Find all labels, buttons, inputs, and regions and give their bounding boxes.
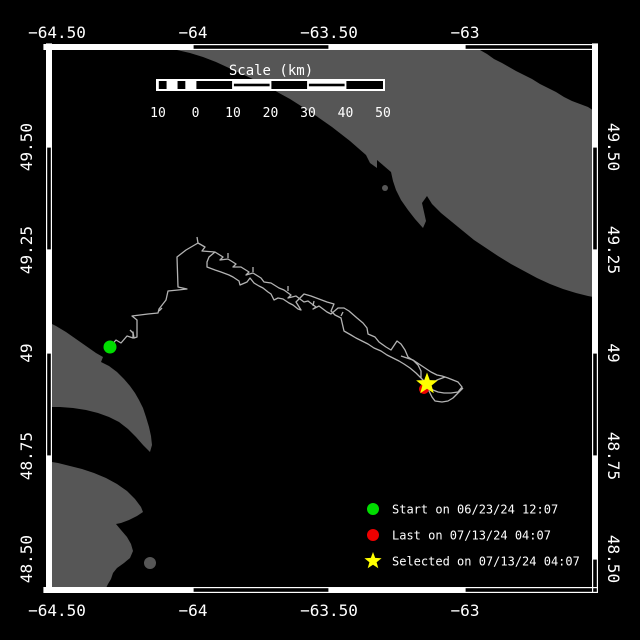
scale-label-1: 0: [192, 106, 200, 121]
frame-seg-solid: [592, 44, 598, 147]
frame-rail: [51, 147, 52, 250]
scale-label-3: 20: [263, 106, 279, 121]
axis-label-top-3: −63: [451, 23, 480, 42]
frame-seg-solid: [46, 456, 52, 593]
frame-tick: [192, 44, 193, 50]
frame-rail: [51, 353, 52, 456]
frame-seg-solid: [592, 250, 598, 353]
axis-label-right-0: 49.50: [604, 123, 623, 171]
frame-seg-solid: [329, 587, 465, 593]
frame-seg-solid: [329, 44, 465, 50]
frame-tick: [192, 587, 193, 593]
legend-marker-1: [367, 529, 379, 541]
scale-bar-title: Scale (km): [229, 63, 313, 79]
scale-label-6: 50: [375, 106, 391, 121]
frame-rail: [465, 44, 598, 45]
frame-rail: [592, 353, 593, 456]
axis-label-left-4: 48.50: [17, 535, 36, 583]
scale-seg-sep: [345, 81, 347, 89]
frame-tick: [328, 44, 329, 50]
frame-rail: [46, 353, 47, 456]
frame-tick: [46, 43, 52, 44]
frame-tick: [43, 44, 44, 50]
islet-1: [144, 557, 156, 569]
axis-label-right-4: 48.50: [604, 535, 623, 583]
frame-tick: [592, 558, 598, 559]
axis-label-bottom-2: −63.50: [300, 601, 358, 620]
frame-rail: [597, 559, 598, 593]
scale-label-2: 10: [225, 106, 241, 121]
frame-rail: [193, 44, 329, 45]
legend-label-2: Selected on 07/13/24 04:07: [392, 555, 580, 569]
scale-seg-sep: [232, 81, 234, 89]
axis-label-left-3: 48.75: [17, 432, 36, 480]
frame-tick: [43, 587, 44, 593]
scale-seg-sep: [307, 81, 309, 89]
legend-marker-0: [367, 503, 379, 515]
scale-seg-stripe-line: [308, 84, 346, 87]
frame-seg-solid: [46, 44, 52, 147]
frame-rail: [193, 587, 329, 588]
frame-rail: [46, 147, 47, 250]
axis-label-left-1: 49.25: [17, 226, 36, 274]
frame-rail: [465, 592, 598, 593]
axis-label-right-3: 48.75: [604, 432, 623, 480]
frame-tick: [592, 146, 598, 147]
frame-tick: [46, 455, 52, 456]
legend-label-0: Start on 06/23/24 12:07: [392, 503, 558, 517]
axis-label-top-2: −63.50: [300, 23, 358, 42]
frame-rail: [592, 559, 593, 593]
scale-seg-stripe-line: [233, 84, 271, 87]
frame-rail: [193, 592, 329, 593]
legend-label-1: Last on 07/13/24 04:07: [392, 529, 551, 543]
frame-seg-solid: [44, 587, 193, 593]
frame-tick: [592, 43, 598, 44]
scale-subcell: [167, 81, 176, 89]
frame-tick: [328, 587, 329, 593]
axis-label-bottom-3: −63: [451, 601, 480, 620]
frame-rail: [193, 49, 329, 50]
frame-tick: [46, 352, 52, 353]
frame-rail: [465, 587, 598, 588]
axis-label-left-2: 49: [17, 343, 36, 362]
legend: Start on 06/23/24 12:07Last on 07/13/24 …: [364, 503, 579, 569]
axis-label-right-1: 49.25: [604, 226, 623, 274]
frame-rail: [597, 353, 598, 456]
axis-label-top-0: −64.50: [28, 23, 86, 42]
frame-tick: [464, 587, 465, 593]
axis-label-right-2: 49: [604, 343, 623, 362]
scale-label-5: 40: [338, 106, 354, 121]
scale-subcell-sep: [185, 81, 187, 89]
scale-subcell: [186, 81, 195, 89]
axis-label-top-1: −64: [179, 23, 208, 42]
scale-label-4: 30: [300, 106, 316, 121]
axis-label-bottom-0: −64.50: [28, 601, 86, 620]
scale-subcell-sep: [167, 81, 169, 89]
frame-rail: [592, 147, 593, 250]
frame-tick: [592, 249, 598, 250]
track-map: Scale (km)1001020304050Start on 06/23/24…: [0, 0, 640, 640]
frame-tick: [592, 455, 598, 456]
frame-tick: [46, 249, 52, 250]
scale-seg-sep: [195, 81, 197, 89]
frame-tick: [592, 352, 598, 353]
axis-label-bottom-1: −64: [179, 601, 208, 620]
frame-rail: [597, 147, 598, 250]
axis-label-left-0: 49.50: [17, 123, 36, 171]
frame-seg-solid: [592, 456, 598, 559]
frame-tick: [464, 44, 465, 50]
frame-seg-solid: [46, 250, 52, 353]
frame-seg-solid: [44, 44, 193, 50]
start-marker: [104, 341, 117, 354]
scale-subcell-sep: [176, 81, 178, 89]
frame-rail: [465, 49, 598, 50]
scale-subcell-sep: [157, 81, 159, 89]
islet-0: [382, 185, 388, 191]
scale-seg-sep: [270, 81, 272, 89]
scale-label-0: 10: [150, 106, 166, 121]
frame-tick: [46, 146, 52, 147]
